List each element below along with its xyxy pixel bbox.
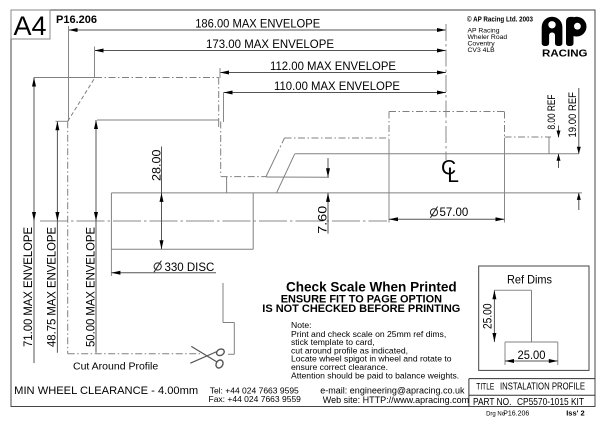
svg-text:IS NOT CHECKED BEFORE PRINTING: IS NOT CHECKED BEFORE PRINTING [262,303,460,315]
svg-text:CV3 4LB: CV3 4LB [468,47,496,54]
svg-text:P16.206: P16.206 [56,14,97,26]
svg-text:L: L [447,164,459,187]
svg-text:25.00: 25.00 [483,304,495,330]
svg-text:50.00 MAX ENVELOPE: 50.00 MAX ENVELOPE [84,227,98,347]
svg-text:Check Scale When Printed: Check Scale When Printed [286,280,457,295]
svg-text:PART NO.: PART NO. [473,397,512,408]
svg-text:Attention should be paid to ba: Attention should be paid to balance weig… [291,370,459,380]
svg-text:71.00 MAX ENVELOPE: 71.00 MAX ENVELOPE [21,227,35,347]
svg-text:CP5570-1015 KIT: CP5570-1015 KIT [517,396,584,408]
svg-text:19.00 REF: 19.00 REF [567,92,579,138]
svg-text:TITLE: TITLE [476,382,494,392]
svg-text:48.75 MAX ENVELOPE: 48.75 MAX ENVELOPE [45,227,59,347]
svg-text:8.00 REF: 8.00 REF [546,94,558,129]
svg-text:Iss' 2: Iss' 2 [566,409,584,418]
svg-text:A4: A4 [13,11,46,41]
svg-text:MIN WHEEL CLEARANCE - 4.00mm: MIN WHEEL CLEARANCE - 4.00mm [14,385,198,397]
svg-text:28.00: 28.00 [152,150,164,182]
svg-text:173.00 MAX ENVELOPE: 173.00 MAX ENVELOPE [206,39,334,51]
svg-text:57.00: 57.00 [440,207,469,219]
svg-text:330 DISC: 330 DISC [165,262,215,274]
svg-text:25.00: 25.00 [518,350,546,362]
svg-text:Fax: +44 024 7663 9559: Fax: +44 024 7663 9559 [209,394,302,404]
svg-text:RACING: RACING [542,48,588,60]
svg-text:186.00 MAX ENVELOPE: 186.00 MAX ENVELOPE [195,19,320,31]
svg-text:7.60: 7.60 [318,206,330,234]
svg-text:Cut Around Profile: Cut Around Profile [73,361,158,373]
svg-text:INSTALATION PROFILE: INSTALATION PROFILE [500,382,585,393]
svg-text:P16.206: P16.206 [503,411,529,418]
svg-text:© AP Racing Ltd. 2003: © AP Racing Ltd. 2003 [467,16,533,24]
svg-text:110.00 MAX ENVELOPE: 110.00 MAX ENVELOPE [274,81,400,93]
svg-text:112.00 MAX ENVELOPE: 112.00 MAX ENVELOPE [270,61,396,73]
svg-text:Ref Dims: Ref Dims [507,273,552,287]
svg-text:e-mail: engineering@apracing.c: e-mail: engineering@apracing.co.uk [320,386,465,396]
svg-text:Web site: HTTP://www.apracing: Web site: HTTP://www.apracing.com [323,395,469,405]
